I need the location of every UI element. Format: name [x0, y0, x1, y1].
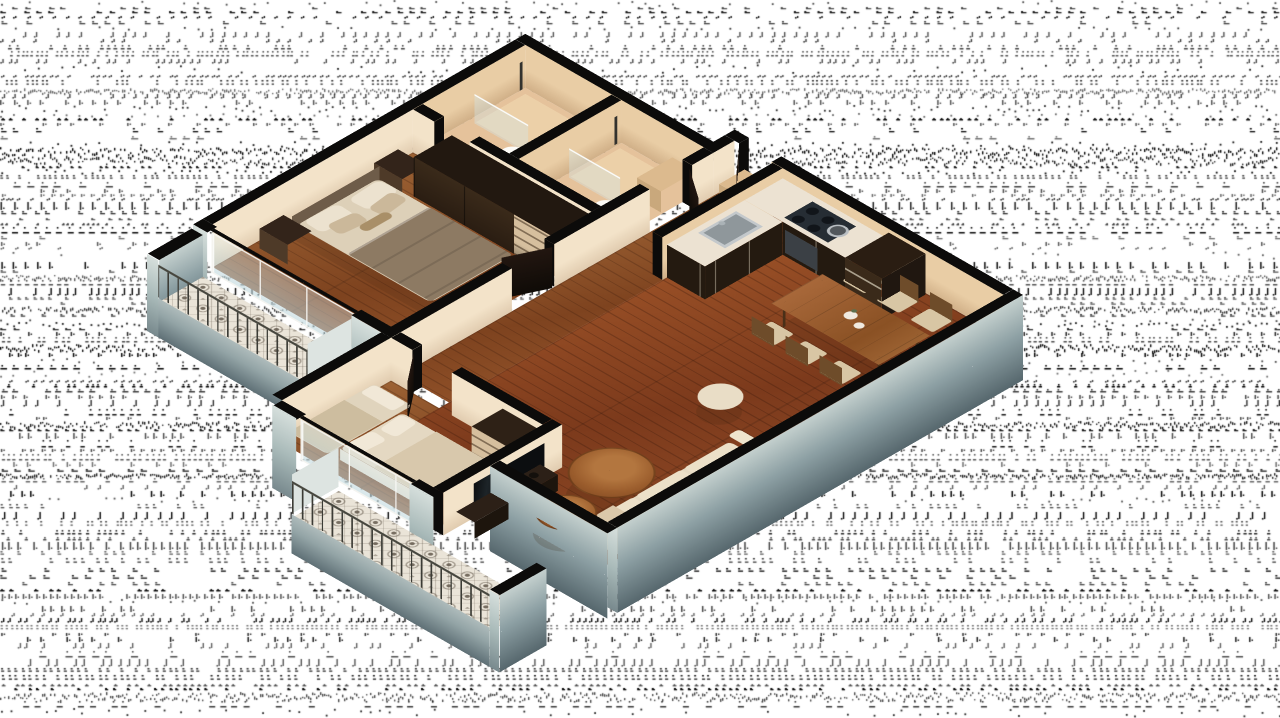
balcony-1-pillar-face-b [147, 254, 158, 337]
jamb-bed2-door [412, 344, 422, 392]
jamb-kitchenwall-end [653, 232, 663, 280]
facade-east-end [607, 522, 617, 613]
shower-fixture-bath1 [520, 61, 523, 90]
shower-fixture-bath2 [614, 116, 617, 145]
floor-plan-stage [0, 0, 1280, 718]
balcony-2-pillar-face-b [489, 590, 499, 673]
